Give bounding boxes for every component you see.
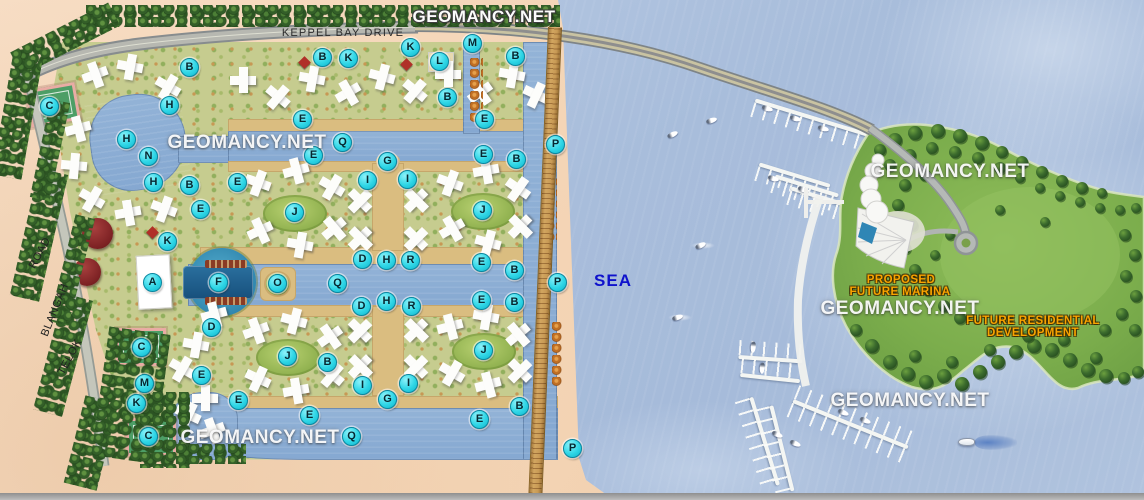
map-marker-M: M xyxy=(135,374,154,393)
map-marker-E: E xyxy=(472,253,491,272)
map-marker-E: E xyxy=(293,110,312,129)
map-marker-J: J xyxy=(278,347,297,366)
map-marker-B: B xyxy=(318,353,337,372)
map-marker-L: L xyxy=(430,52,449,71)
map-marker-I: I xyxy=(398,170,417,189)
map-marker-H: H xyxy=(377,292,396,311)
image-frame-edge xyxy=(0,493,1144,500)
watermark: GEOMANCY.NET xyxy=(413,7,556,27)
map-marker-N: N xyxy=(139,147,158,166)
map-marker-K: K xyxy=(127,394,146,413)
map-marker-Q: Q xyxy=(342,427,361,446)
map-marker-C: C xyxy=(40,97,59,116)
map-marker-J: J xyxy=(285,203,304,222)
map-marker-P: P xyxy=(548,273,567,292)
watermark: GEOMANCY.NET xyxy=(167,132,326,154)
map-marker-E: E xyxy=(472,291,491,310)
map-marker-E: E xyxy=(192,366,211,385)
map-marker-E: E xyxy=(300,406,319,425)
map-marker-D: D xyxy=(352,297,371,316)
map-marker-K: K xyxy=(339,49,358,68)
map-marker-R: R xyxy=(402,297,421,316)
map-marker-B: B xyxy=(438,88,457,107)
map-marker-E: E xyxy=(474,145,493,164)
map-marker-E: E xyxy=(228,173,247,192)
map-marker-C: C xyxy=(139,427,158,446)
sea-label: SEA xyxy=(594,271,632,291)
map-marker-E: E xyxy=(191,200,210,219)
map-marker-G: G xyxy=(378,152,397,171)
map-marker-K: K xyxy=(158,232,177,251)
map-marker-O: O xyxy=(268,274,287,293)
map-marker-I: I xyxy=(358,171,377,190)
watermark: GEOMANCY.NET xyxy=(820,298,979,320)
map-marker-B: B xyxy=(180,176,199,195)
map-marker-I: I xyxy=(399,374,418,393)
future-residential-label-line2: DEVELOPMENT xyxy=(987,327,1079,339)
keppel-bay-drive-label: KEPPEL BAY DRIVE xyxy=(282,27,404,39)
map-marker-E: E xyxy=(470,410,489,429)
map-marker-H: H xyxy=(144,173,163,192)
map-marker-K: K xyxy=(401,38,420,57)
map-marker-B: B xyxy=(180,58,199,77)
watermark: GEOMANCY.NET xyxy=(180,427,339,449)
map-marker-D: D xyxy=(202,318,221,337)
map-marker-M: M xyxy=(463,34,482,53)
map-marker-B: B xyxy=(313,48,332,67)
map-marker-J: J xyxy=(473,201,492,220)
map-marker-C: C xyxy=(132,338,151,357)
map-marker-H: H xyxy=(160,96,179,115)
watermark: GEOMANCY.NET xyxy=(870,161,1029,183)
map-marker-P: P xyxy=(546,135,565,154)
map-marker-G: G xyxy=(378,390,397,409)
map-marker-R: R xyxy=(401,251,420,270)
orange-tree-line xyxy=(552,322,563,386)
map-marker-B: B xyxy=(510,397,529,416)
future-residential-label-line1: FUTURE RESIDENTIAL xyxy=(966,315,1100,327)
map-marker-H: H xyxy=(117,130,136,149)
site-plan-map: CBHHNHBEEKAFODCMKCEEBKKLMBBEEQEGIIEBPJJD… xyxy=(0,0,1144,500)
map-marker-H: H xyxy=(377,251,396,270)
map-marker-E: E xyxy=(475,110,494,129)
map-marker-B: B xyxy=(505,293,524,312)
map-marker-E: E xyxy=(229,391,248,410)
map-marker-Q: Q xyxy=(333,133,352,152)
watermark: GEOMANCY.NET xyxy=(830,390,989,412)
breakwater xyxy=(798,196,820,386)
proposed-marina-label-line2: FUTURE MARINA xyxy=(849,286,950,298)
proposed-marina-label-line1: PROPOSED xyxy=(867,274,935,286)
map-marker-I: I xyxy=(353,376,372,395)
map-marker-B: B xyxy=(506,47,525,66)
map-marker-B: B xyxy=(505,261,524,280)
map-marker-P: P xyxy=(563,439,582,458)
map-marker-D: D xyxy=(353,250,372,269)
map-marker-A: A xyxy=(143,273,162,292)
map-marker-F: F xyxy=(209,273,228,292)
map-marker-Q: Q xyxy=(328,274,347,293)
map-marker-B: B xyxy=(507,150,526,169)
map-marker-J: J xyxy=(474,341,493,360)
